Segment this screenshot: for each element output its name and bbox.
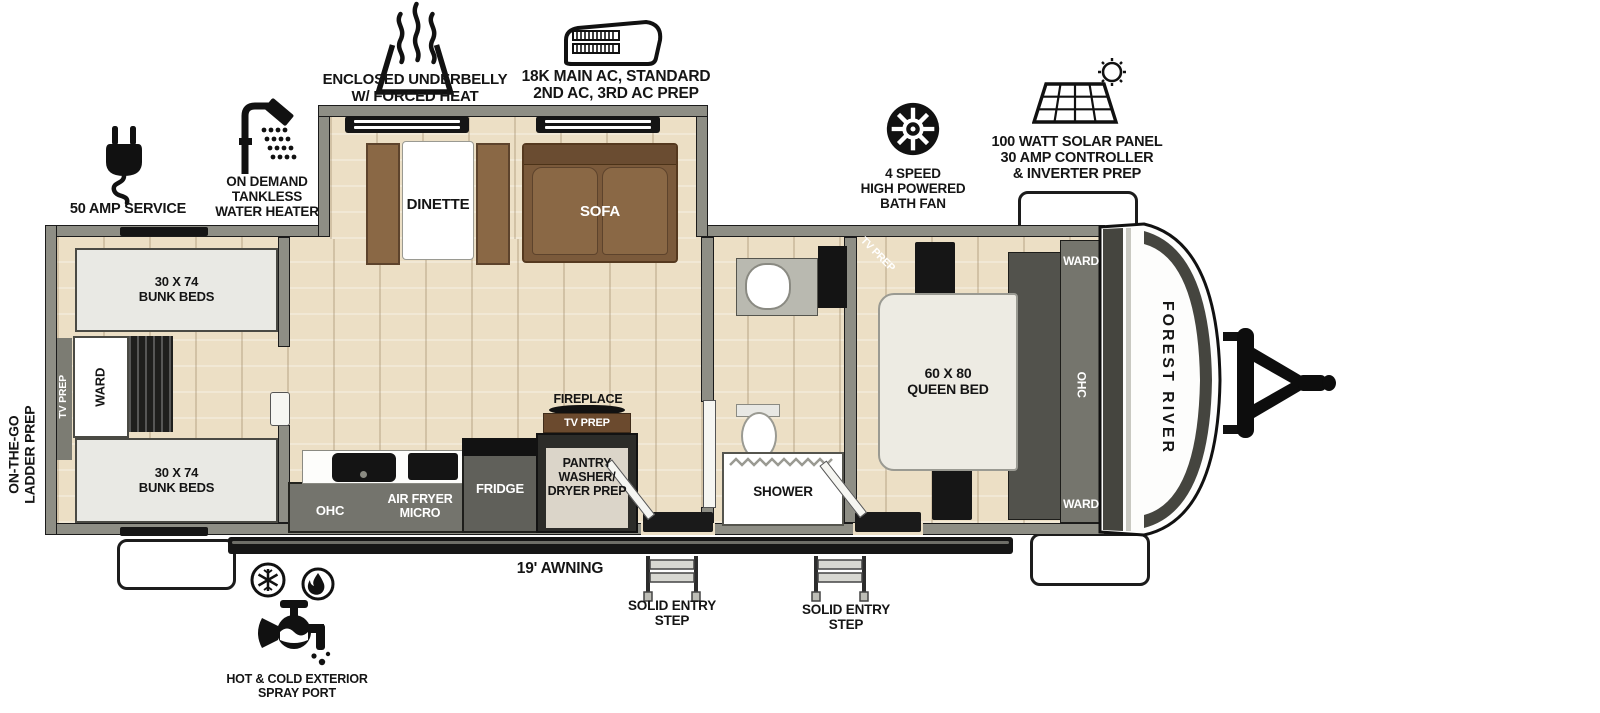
wall-bathroom-left-upper [701,237,714,402]
window-slat [354,126,460,129]
fridge-label: FRIDGE [465,482,535,497]
queen-bed-label: 60 X 80 QUEEN BED [888,366,1008,397]
bunk-bed-top: 30 X 74 BUNK BEDS [75,248,278,332]
bedroom-cabinet-top [915,242,955,296]
bunk-bed-bottom: 30 X 74 BUNK BEDS [75,438,278,523]
solar-label: 100 WATT SOLAR PANEL 30 AMP CONTROLLER &… [977,134,1177,183]
kitchen-tv-prep-label: TV PREP [552,417,622,429]
kitchen-sink [332,453,396,482]
wall-top-right [696,225,1105,237]
power-plug-icon [102,124,146,208]
sofa-label: SOFA [560,204,640,221]
entry-door-2-mat [855,512,921,532]
window-slat [545,126,651,129]
wall-rear [45,225,57,535]
window-slat [354,120,460,123]
brand-name: FOREST RIVER [1158,278,1176,478]
pantry-label: PANTRY WASHER/ DRYER PREP [539,456,635,498]
faucet-valve-icon [258,600,330,665]
ac-unit-icon [558,18,668,70]
bath-medicine-cabinet [818,246,847,308]
bath-fan-label: 4 SPEED HIGH POWERED BATH FAN [848,166,978,211]
shower-head-icon [237,96,299,176]
slideout-window-right [536,116,660,133]
bunkroom-window-top [120,227,208,236]
fireplace-label: FIREPLACE [543,392,633,406]
water-heater-label: ON DEMAND TANKLESS WATER HEATER [202,174,332,219]
shower-label: SHOWER [743,484,823,499]
bath-fan-icon [882,98,944,160]
bunkroom-dresser [129,336,173,432]
bedroom-ward-top-label: WARD [1056,255,1106,268]
awning-label: 19' AWNING [500,560,620,577]
bunk-bottom-label: 30 X 74 BUNK BEDS [139,466,214,495]
storage-pad-rear-bottom [117,539,236,590]
bunkroom-door [270,392,290,426]
ladder-prep-label: ON-THE-GO LADDER PREP [6,390,37,520]
fridge-top [462,438,538,456]
ac-label: 18K MAIN AC, STANDARD 2ND AC, 3RD AC PRE… [506,68,726,103]
kitchen-ohc-label: OHC [305,504,355,519]
flame-icon [303,569,333,599]
bunkroom-ward-label: WARD [94,347,109,427]
rv-floorplan-diagram: TV PREP 30 X 74 BUNK BEDS 30 X 74 BUNK B… [0,0,1600,713]
kitchen-cooktop [408,453,458,480]
bunkroom-window-bottom [120,527,208,536]
bunkroom-tv-prep-label: TV PREP [58,362,70,432]
enclosed-underbelly-label: ENCLOSED UNDERBELLY W/ FORCED HEAT [315,72,515,106]
slideout-window-left [345,116,469,133]
entry-step-1-label: SOLID ENTRY STEP [617,598,727,628]
bath-sink-basin [745,263,791,310]
bedroom-ward-bottom-label: WARD [1056,498,1106,511]
bunk-top-label: 30 X 74 BUNK BEDS [139,275,214,304]
spray-port-icon [242,560,352,670]
solar-panel-icon [1032,58,1127,130]
spray-port-label: HOT & COLD EXTERIOR SPRAY PORT [212,672,382,700]
bath-vanity [736,258,818,316]
bedroom-cabinet-bottom [932,466,972,520]
dinette-label: DINETTE [383,197,493,214]
slideout-wall-right [696,105,708,237]
entry-step-2-icon [808,554,872,602]
awning-bar-highlight [232,541,1009,544]
bedroom-ohc-label: OHC [1074,355,1087,415]
entry-step-2-label: SOLID ENTRY STEP [791,602,901,632]
air-fryer-micro-label: AIR FRYER MICRO [380,492,460,520]
bathroom-door-leaf [703,400,716,508]
awning-bar [228,537,1013,554]
sofa-backrest [524,145,676,165]
snowflake-icon [252,564,284,596]
sink-faucet [360,471,367,478]
window-slat [545,120,651,123]
entry-step-1-icon [640,554,704,602]
amp-service-label: 50 AMP SERVICE [58,201,198,217]
wall-bunkroom-divider-top [278,237,290,347]
